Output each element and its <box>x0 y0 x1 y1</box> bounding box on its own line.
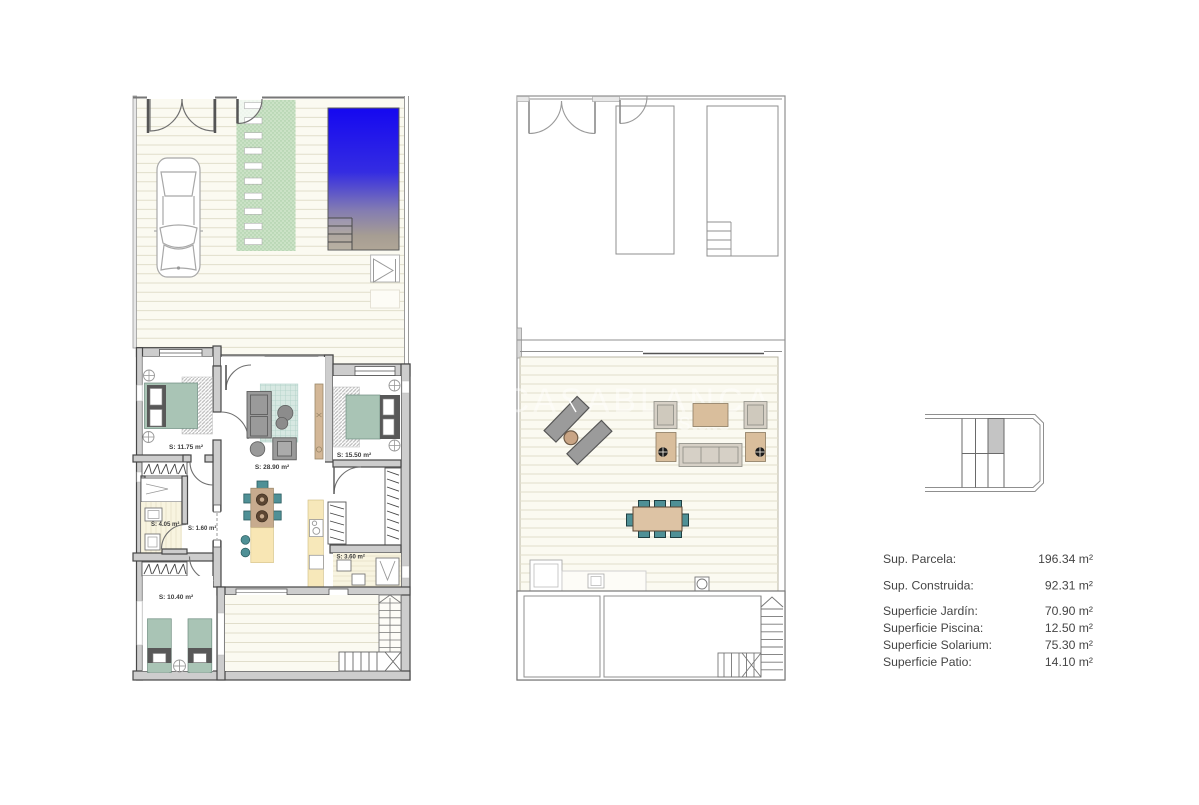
svg-text:S: 10.40 m²: S: 10.40 m² <box>159 594 194 601</box>
svg-text:12.50 m²: 12.50 m² <box>1045 621 1093 635</box>
svg-text:S: 4.05 m²: S: 4.05 m² <box>151 521 179 528</box>
svg-text:S: 1.60 m²: S: 1.60 m² <box>188 525 216 532</box>
svg-text:Superficie Jardín:: Superficie Jardín: <box>883 604 978 618</box>
svg-text:S: 3.60 m²: S: 3.60 m² <box>337 554 365 561</box>
svg-text:S: 28.90 m²: S: 28.90 m² <box>255 464 290 471</box>
svg-text:S: 11.75 m²: S: 11.75 m² <box>169 444 204 451</box>
svg-text:Superficie Piscina:: Superficie Piscina: <box>883 621 983 635</box>
svg-text:75.30 m²: 75.30 m² <box>1045 638 1093 652</box>
svg-text:Sup. Construida:: Sup. Construida: <box>883 579 974 593</box>
svg-text:196.34 m²: 196.34 m² <box>1038 552 1093 566</box>
svg-text:CASABLANCA: CASABLANCA <box>505 382 774 420</box>
svg-text:14.10 m²: 14.10 m² <box>1045 655 1093 669</box>
svg-text:92.31 m²: 92.31 m² <box>1045 579 1093 593</box>
svg-text:70.90 m²: 70.90 m² <box>1045 604 1093 618</box>
svg-text:S: 15.50 m²: S: 15.50 m² <box>337 452 372 459</box>
svg-text:Superficie Patio:: Superficie Patio: <box>883 655 972 669</box>
svg-text:Superficie Solarium:: Superficie Solarium: <box>883 638 992 652</box>
svg-text:Sup. Parcela:: Sup. Parcela: <box>883 552 956 566</box>
